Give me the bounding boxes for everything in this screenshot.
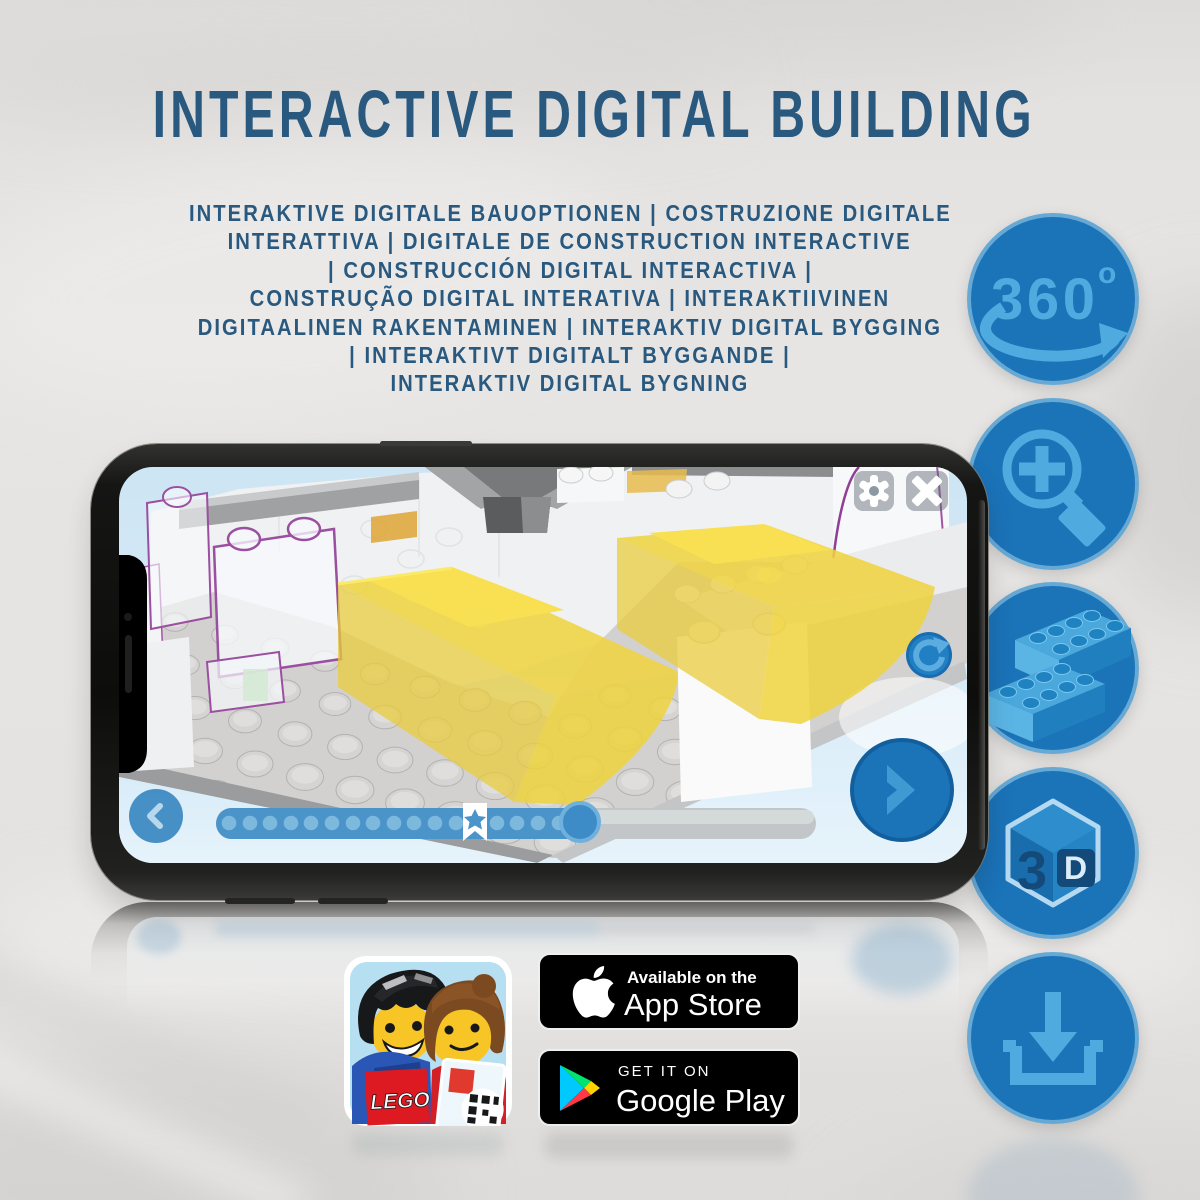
svg-text:GET IT ON: GET IT ON — [618, 1063, 710, 1080]
svg-text:LEGO: LEGO — [370, 1088, 431, 1114]
svg-text:Available on the: Available on the — [627, 968, 757, 987]
svg-text:3: 3 — [1017, 841, 1047, 901]
svg-text:360: 360 — [991, 267, 1095, 332]
svg-text:App Store: App Store — [624, 987, 762, 1022]
svg-text:Google Play: Google Play — [616, 1083, 785, 1118]
svg-text:o: o — [1098, 257, 1116, 290]
svg-text:D: D — [1064, 850, 1087, 886]
